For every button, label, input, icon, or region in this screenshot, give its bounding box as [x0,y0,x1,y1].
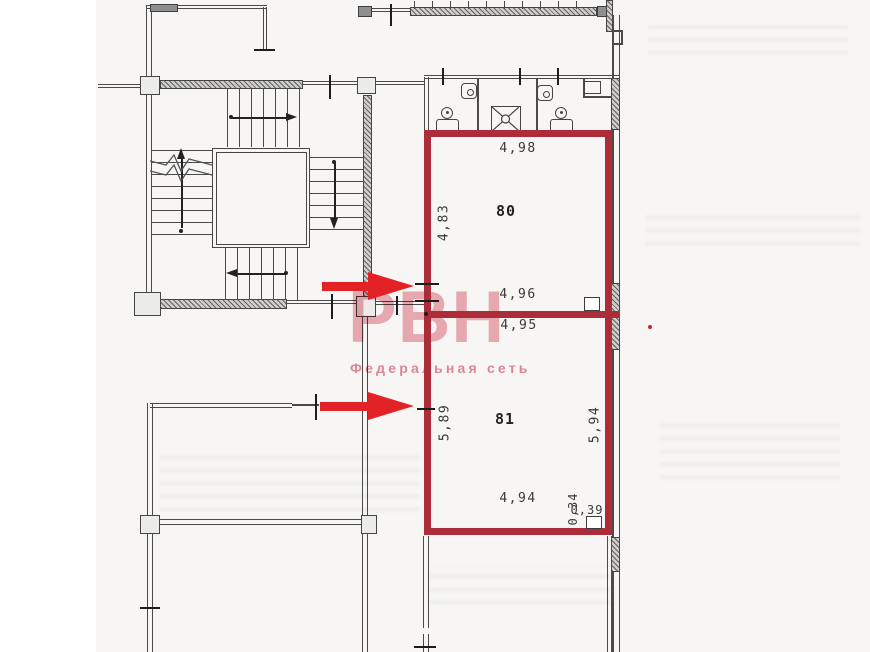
dim-room81-left: 5,89 [438,401,453,445]
wall-tick [329,75,331,99]
stair-arrowhead [286,113,297,121]
stair-arrow-right [231,117,288,119]
dimension-dashes [414,1,582,9]
dim-room81-right: 5,94 [588,403,603,447]
room-outline-bottom [424,528,612,535]
dim-room80-bottom: 4,96 [496,287,540,302]
wall [287,300,357,304]
stair-tread [297,248,298,300]
wall [98,84,142,88]
wall [376,81,425,85]
shower-drain-icon [491,106,521,133]
room81-number: 81 [491,410,519,428]
stair-tread [414,1,415,9]
wall-tick [390,4,392,26]
stair-tread [558,1,559,9]
wall-dot [424,312,428,316]
column [134,292,161,316]
stair-break-symbol [150,147,214,185]
wall-tick [415,300,439,302]
stair-tread [310,157,363,158]
stair-tread [152,234,212,235]
dim-room80-top: 4,98 [496,141,540,156]
wall [363,95,372,297]
sink-icon [537,85,553,101]
watermark-tagline: Федеральная сеть [350,360,531,376]
arrow-tail [320,402,370,411]
wall-break [422,628,430,634]
wall-segment [150,4,178,12]
dim-corner-width: 0,39 [567,503,607,517]
pointer-arrow-room81 [320,392,414,420]
stair-tread [576,1,577,9]
wall-tick [414,646,436,648]
stair-arrow-dot [179,229,183,233]
column [361,515,377,534]
stair-tread [299,88,300,147]
stair-tread [310,229,363,230]
stair-tread [310,169,363,170]
stair-tread [504,1,505,9]
wall [160,519,362,525]
room-outline-left [424,130,431,535]
wall [424,77,429,132]
sink-tap [543,91,550,98]
stair-tread [486,1,487,9]
dim-room81-top: 4,95 [497,318,541,333]
scan-noise [648,25,848,55]
wall [150,403,292,408]
wall-tick [417,408,435,410]
arrow-head [368,392,414,420]
partition-wall [583,96,612,98]
wall [160,299,287,309]
column [357,77,376,94]
partition-wall [477,78,479,132]
stair-tread [468,1,469,9]
stair-arrowhead [226,269,237,277]
scan-margin [0,0,96,652]
stair-landing [212,148,310,248]
stair-tread [310,193,363,194]
dim-room81-bottom: 4,94 [496,491,540,506]
wall-tick [315,394,317,420]
stair-arrow-dot [229,115,233,119]
stair-tread [432,1,433,9]
toilet-dot [446,111,449,114]
wall-tick [140,607,160,609]
sink-icon [461,83,477,99]
stair-arrow-dot [332,160,336,164]
stair-tread [310,181,363,182]
stair-arrow-left [234,273,286,275]
wall-segment [358,6,372,17]
stair-landing-inner [216,152,307,245]
wall [607,536,612,652]
cabinet-icon [584,81,601,94]
red-dot [648,325,652,329]
wall [263,7,267,51]
exterior-wall [611,537,620,572]
toilet-dot [560,111,563,114]
dim-room80-left: 4,83 [437,201,452,245]
room80-number: 80 [492,202,520,220]
wall [303,81,361,85]
room-outline-top [424,130,612,137]
floor-plan-canvas: РВН Федеральная сеть 4,98 4,83 80 4,96 4… [0,0,870,652]
wall [146,5,152,79]
wall-tick [519,68,521,85]
sink-tap [467,89,474,96]
room-divider-wall [424,311,620,318]
shaft-square [584,297,600,311]
pointer-arrow-room80 [322,272,414,300]
wall-tick [415,283,439,285]
exterior-wall [611,78,620,130]
stair-tread [450,1,451,9]
wall [613,43,622,45]
stair-tread [540,1,541,9]
stair-arrowhead [330,218,338,229]
arrow-head [368,272,414,300]
stair-tread [522,1,523,9]
shaft-square [586,516,602,529]
wall [423,536,429,652]
wall [424,75,620,79]
scan-noise [160,448,420,512]
wall-tick [442,68,444,85]
stair-arrow-dot [284,271,288,275]
scan-noise [645,212,860,246]
wall-tick [254,49,275,51]
arrow-tail [322,282,370,291]
room-outline-right [605,130,612,535]
scan-noise [430,565,615,605]
column [140,76,160,95]
wall-tick [557,68,559,85]
scan-noise [660,420,840,480]
stair-arrow-down [334,163,336,220]
stair-tread [310,205,363,206]
column [140,515,160,534]
